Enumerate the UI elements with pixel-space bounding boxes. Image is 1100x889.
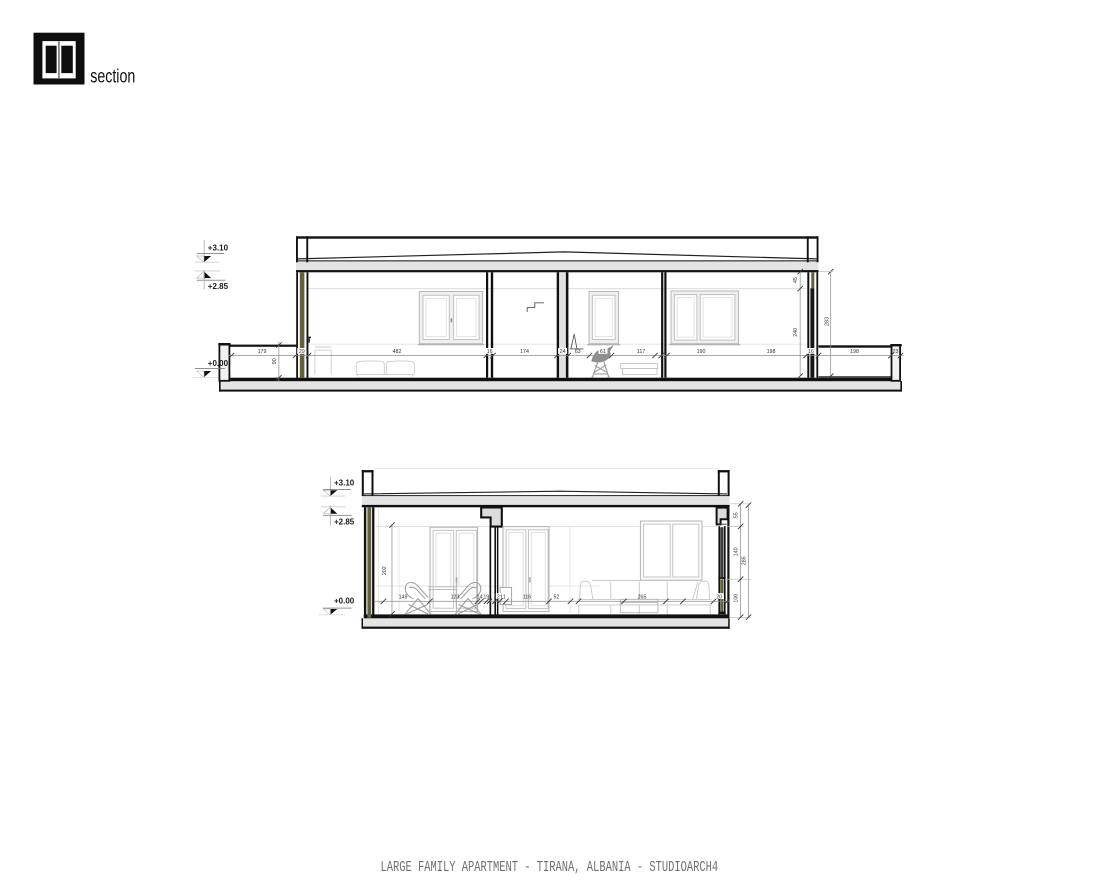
svg-text:23: 23 [893,349,899,355]
svg-text:265: 265 [638,594,647,600]
svg-text:+3.10: +3.10 [334,479,355,488]
svg-text:55: 55 [734,512,740,518]
svg-text:11: 11 [500,594,506,600]
svg-text:100: 100 [734,594,740,603]
svg-text:61: 61 [600,349,606,355]
svg-text:198: 198 [850,349,859,355]
svg-text:116: 116 [523,594,531,600]
svg-text:179: 179 [258,349,267,355]
svg-text:+0.00: +0.00 [334,596,355,605]
svg-text:20: 20 [716,594,722,600]
svg-text:19: 19 [483,594,489,600]
svg-text:section: section [90,65,135,87]
svg-text:140: 140 [734,547,740,556]
svg-text:240: 240 [793,328,799,337]
svg-text:+2.85: +2.85 [334,517,355,526]
svg-text:45: 45 [793,277,799,283]
svg-text:482: 482 [393,349,402,355]
svg-text:+0.00: +0.00 [208,359,229,368]
svg-text:149: 149 [399,594,408,600]
svg-text:174: 174 [520,349,529,355]
svg-text:+3.10: +3.10 [208,244,229,253]
svg-text:198: 198 [767,349,776,355]
svg-text:29: 29 [299,349,305,355]
svg-text:52: 52 [554,594,560,600]
svg-text:63: 63 [575,349,581,355]
svg-text:117: 117 [637,349,645,355]
svg-text:LARGE FAMILY APARTMENT - TIRA: LARGE FAMILY APARTMENT - TIRANA, ALBANIA… [381,858,719,875]
svg-text:285: 285 [742,556,748,565]
svg-text:90: 90 [272,358,278,364]
svg-text:24: 24 [560,349,566,355]
svg-text:14: 14 [477,594,483,600]
svg-text:283: 283 [824,317,830,326]
svg-text:202: 202 [382,566,388,575]
svg-text:+2.85: +2.85 [208,282,229,291]
svg-text:190: 190 [697,349,706,355]
svg-text:123: 123 [451,594,460,600]
svg-text:16: 16 [808,349,814,355]
svg-text:16: 16 [487,349,493,355]
